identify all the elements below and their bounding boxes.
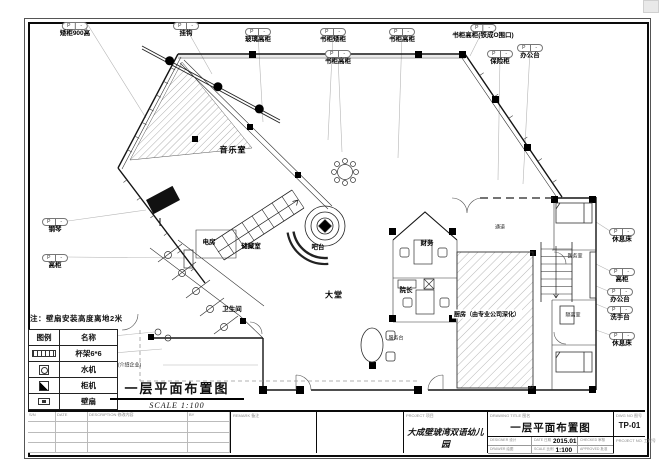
install-note: 注：壁扇安装高度离地2米: [30, 313, 123, 324]
approved-cell: APPROVED 批准: [578, 446, 614, 455]
revision-cell: BY: [188, 412, 230, 422]
revision-cell: [88, 422, 188, 432]
dwgno-box: DWG NO 图号 TP-01: [614, 412, 645, 437]
water-dispenser-icon: [39, 365, 49, 375]
title-block: S/NDATEDESCRIPTION 修改内容BY REMARK 备注 PROJ…: [28, 410, 645, 453]
plan-title: 一层平面布置图 SCALE 1:100: [110, 378, 244, 412]
scale-cell: SCALE 比例 1:100: [532, 446, 578, 455]
legend-row: 柜机: [29, 378, 117, 394]
revision-cell: [188, 422, 230, 432]
cup-rack-icon: [32, 350, 56, 357]
kitchen-hatch: [457, 252, 533, 388]
cabinet-ac-icon: [39, 381, 49, 391]
checked-cell: CHECKED 审核: [578, 437, 614, 446]
revision-cell: [88, 433, 188, 443]
revision-cell: [56, 443, 88, 453]
office-furniture: [398, 240, 449, 314]
dwgno-cell: DWG NO 图号 TP-01 PROJECT NO. 工程号: [613, 412, 645, 453]
legend-item-name: 水机: [60, 362, 117, 377]
revision-cell: [56, 422, 88, 432]
revision-table: S/NDATEDESCRIPTION 修改内容BY: [28, 412, 230, 453]
scale-label: SCALE 比例: [534, 447, 553, 451]
legend-row: 杯架6*6: [29, 346, 117, 362]
rest-rooms: [556, 203, 596, 372]
legend-table: 图例 名称 杯架6*6水机柜机壁扇: [28, 329, 118, 410]
drawing-title-box: DRAWING TITLE 图名 一层平面布置图: [488, 412, 613, 437]
revision-cell: [28, 443, 56, 453]
revision-cell: S/N: [28, 412, 56, 422]
drawing-title: 一层平面布置图: [488, 420, 613, 435]
legend-header-symbol: 图例: [29, 330, 60, 345]
keyplan-cell: [316, 412, 403, 453]
revision-cell: [88, 443, 188, 453]
drawer-cell: DRAWER 绘图: [488, 446, 532, 455]
right-staircase: [541, 242, 572, 302]
date-value: 2015.01: [553, 438, 577, 445]
drawing-cell: DRAWING TITLE 图名 一层平面布置图 DESIGNER 设计 DAT…: [487, 412, 613, 453]
scale-value: 1:100: [555, 447, 572, 454]
project-cell: PROJECT 项目 大成壁琥湾双语幼儿园: [403, 412, 487, 453]
revision-cell: DATE: [56, 412, 88, 422]
drawing-title-label: DRAWING TITLE 图名: [490, 413, 530, 419]
date-cell: DATE 日期 2015.01: [532, 437, 578, 446]
wall-fan-icon: [38, 398, 50, 405]
revision-cell: [188, 443, 230, 453]
revision-cell: [188, 433, 230, 443]
round-table: [332, 159, 359, 186]
plan-title-text: 一层平面布置图: [110, 378, 244, 400]
legend-header-name: 名称: [60, 330, 117, 345]
revision-cell: [28, 433, 56, 443]
legend-item-name: 柜机: [60, 378, 117, 393]
dwgno-value: TP-01: [614, 421, 645, 430]
drawing-sheet: P-矮柜900高P-挂钩P-玻璃高柜P-书柜矮柜P-书柜高柜P-书柜高柜P-书柜…: [0, 0, 660, 466]
legend-item-name: 杯架6*6: [60, 346, 117, 361]
drawing-meta-grid: DESIGNER 设计 DATE 日期 2015.01 CHECKED 审核 D…: [488, 437, 613, 454]
spiral-reception: [288, 206, 345, 264]
remark-cell: REMARK 备注: [230, 412, 316, 453]
service-desk: [361, 328, 395, 362]
legend-item-name: 壁扇: [60, 394, 117, 409]
remark-label: REMARK 备注: [233, 413, 259, 419]
revision-cell: [56, 433, 88, 443]
projectno-label: PROJECT NO. 工程号: [616, 438, 656, 444]
legend-row: 水机: [29, 362, 117, 378]
dwgno-label: DWG NO 图号: [616, 413, 642, 419]
project-label: PROJECT 项目: [406, 413, 434, 419]
office-roof-wall: [393, 212, 457, 240]
legend-header: 图例 名称: [29, 330, 117, 346]
piano: [146, 186, 180, 226]
main-staircase: [212, 190, 304, 260]
revision-cell: [28, 422, 56, 432]
revision-cell: DESCRIPTION 修改内容: [88, 412, 188, 422]
designer-cell: DESIGNER 设计: [488, 437, 532, 446]
date-label: DATE 日期: [534, 438, 551, 442]
legend-rows: 杯架6*6水机柜机壁扇: [29, 346, 117, 409]
project-name: 大成壁琥湾双语幼儿园: [404, 426, 487, 450]
legend-row: 壁扇: [29, 394, 117, 409]
